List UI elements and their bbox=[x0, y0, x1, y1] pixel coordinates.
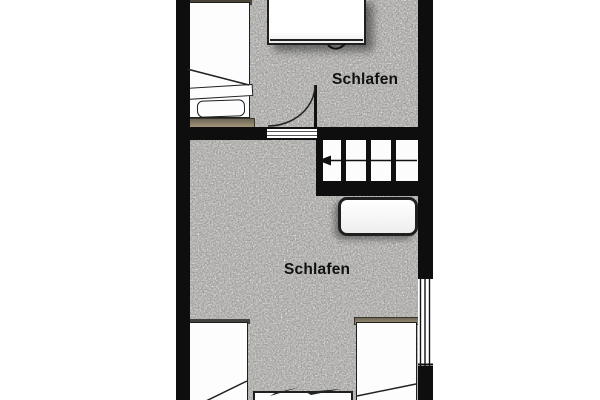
room-label-upper: Schlafen bbox=[332, 71, 398, 89]
door-threshold-line bbox=[267, 135, 317, 136]
single-bed-lower-left bbox=[189, 322, 248, 400]
door-leaf bbox=[314, 85, 317, 127]
door-threshold bbox=[267, 127, 317, 140]
stair-tread-divider bbox=[366, 140, 371, 181]
stairs-bottom-wall bbox=[316, 181, 433, 196]
bedside-table bbox=[253, 391, 353, 400]
room-label-lower: Schlafen bbox=[284, 261, 350, 279]
bed-pillow bbox=[197, 99, 246, 118]
single-bed-lower-right bbox=[356, 322, 417, 400]
stair-tread-divider bbox=[391, 140, 396, 181]
divider-wall-right bbox=[317, 127, 433, 140]
door-threshold-line bbox=[267, 131, 317, 132]
divider-wall-left bbox=[176, 127, 267, 140]
right-wall-lower bbox=[418, 365, 433, 400]
chest bbox=[338, 197, 418, 236]
left-wall bbox=[176, 0, 190, 400]
wardrobe-inner-line bbox=[270, 39, 363, 41]
stair-tread-divider bbox=[341, 140, 346, 181]
floorplan: Schlafen Schlafen bbox=[0, 0, 600, 400]
